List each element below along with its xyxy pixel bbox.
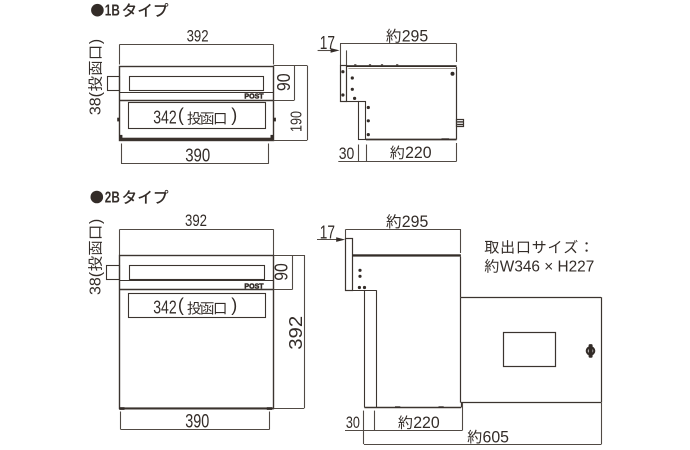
svg-text:90: 90 [272, 263, 292, 281]
svg-text:295: 295 [402, 27, 429, 46]
svg-text:38(: 38( [88, 91, 105, 115]
svg-text:220: 220 [413, 413, 440, 432]
svg-text:392: 392 [185, 211, 207, 230]
svg-text:392: 392 [286, 316, 306, 350]
svg-text:390: 390 [185, 144, 210, 165]
svg-text:W346 × H227: W346 × H227 [500, 259, 595, 276]
svg-text:30: 30 [346, 414, 360, 432]
svg-text:): ) [88, 39, 105, 44]
svg-text:342: 342 [153, 297, 177, 317]
svg-text:(: ( [178, 295, 184, 315]
svg-text:): ) [231, 105, 237, 125]
svg-text:190: 190 [289, 111, 306, 132]
svg-text:POST: POST [244, 281, 264, 290]
svg-text:220: 220 [405, 143, 432, 162]
svg-text:2B: 2B [105, 189, 120, 206]
svg-text:): ) [231, 295, 237, 315]
svg-text:390: 390 [185, 412, 209, 433]
svg-text:38(: 38( [88, 271, 105, 295]
svg-text:295: 295 [402, 212, 429, 231]
svg-text:): ) [88, 219, 105, 224]
svg-text:1B: 1B [105, 2, 120, 19]
svg-text:30: 30 [339, 144, 355, 163]
svg-text:POST: POST [244, 92, 264, 101]
svg-text:605: 605 [483, 427, 510, 446]
svg-text:90: 90 [273, 73, 294, 91]
svg-text:342: 342 [153, 107, 177, 127]
svg-text:392: 392 [187, 27, 209, 46]
svg-text:(: ( [178, 105, 184, 125]
